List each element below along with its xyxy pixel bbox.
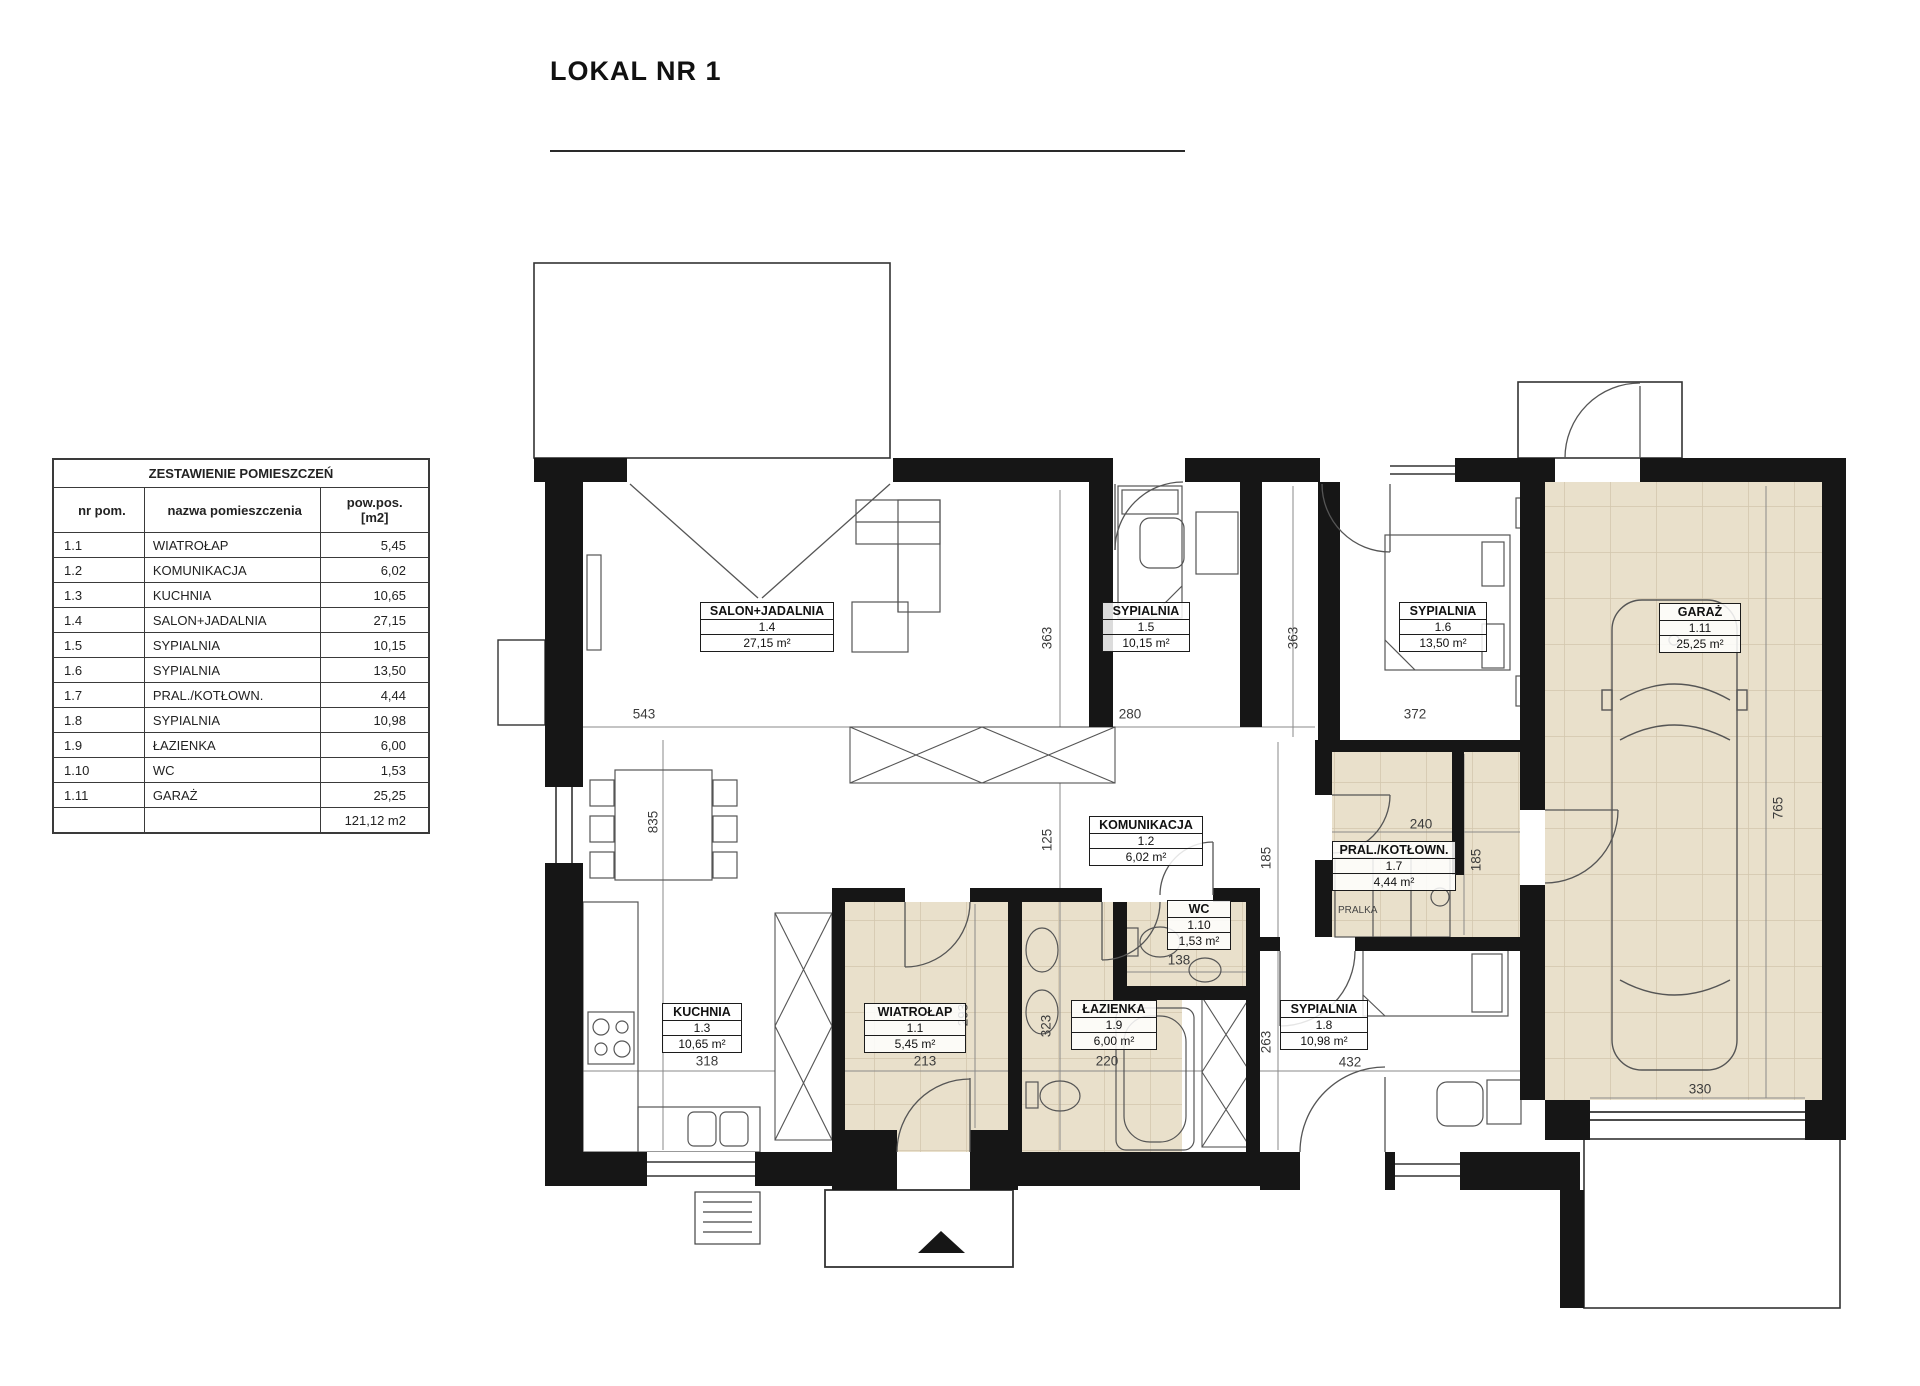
room-area: 4,44 m² [1333, 874, 1455, 890]
room-label-wc: WC 1.10 1,53 m² [1167, 900, 1231, 950]
table-row: 1.3KUCHNIA10,65 [53, 583, 429, 608]
cell-nr: 1.11 [53, 783, 144, 808]
room-number: 1.7 [1333, 859, 1455, 874]
dimension-label-185a: 185 [1259, 847, 1274, 870]
room-number: 1.8 [1281, 1018, 1367, 1033]
room-label-pral-kotlownia: PRAL./KOTŁOWN. 1.7 4,44 m² [1332, 841, 1456, 891]
room-area: 10,15 m² [1103, 635, 1189, 651]
schedule-header-area: pow.pos. [m2] [321, 488, 429, 533]
washer-label: PRALKA [1338, 905, 1377, 916]
dimension-label-363a: 363 [1040, 627, 1055, 650]
table-row: 1.1WIATROŁAP5,45 [53, 533, 429, 558]
room-number: 1.2 [1090, 834, 1202, 849]
room-label-komunikacja: KOMUNIKACJA 1.2 6,02 m² [1089, 816, 1203, 866]
cell-name: SYPIALNIA [144, 633, 321, 658]
dimension-label-318: 318 [696, 1054, 719, 1069]
schedule-title: ZESTAWIENIE POMIESZCZEŃ [53, 459, 429, 488]
room-number: 1.4 [701, 620, 833, 635]
dimension-label-543: 543 [633, 707, 656, 722]
cell-area: 6,00 [321, 733, 429, 758]
room-number: 1.5 [1103, 620, 1189, 635]
room-name: SYPIALNIA [1281, 1001, 1367, 1018]
cell-name: KUCHNIA [144, 583, 321, 608]
room-area: 1,53 m² [1168, 933, 1230, 949]
table-row: 1.10WC1,53 [53, 758, 429, 783]
cell-name: WIATROŁAP [144, 533, 321, 558]
room-label-kuchnia: KUCHNIA 1.3 10,65 m² [662, 1003, 742, 1053]
dimension-label-220: 220 [1096, 1054, 1119, 1069]
floor-plan-sheet: LOKAL NR 1 ZESTAWIENIE POMIESZCZEŃ nr po… [0, 0, 1920, 1386]
room-number: 1.10 [1168, 918, 1230, 933]
dimension-label-280: 280 [1119, 707, 1142, 722]
cell-nr: 1.4 [53, 608, 144, 633]
room-number: 1.3 [663, 1021, 741, 1036]
dimension-label-138: 138 [1168, 953, 1191, 968]
cell-area: 27,15 [321, 608, 429, 633]
cell-area: 25,25 [321, 783, 429, 808]
table-total-row: 121,12 m2 [53, 808, 429, 834]
cell-nr: 1.1 [53, 533, 144, 558]
room-area: 6,02 m² [1090, 849, 1202, 865]
cell-nr: 1.3 [53, 583, 144, 608]
page-title: LOKAL NR 1 [550, 56, 722, 87]
room-label-wiatrolap: WIATROŁAP 1.1 5,45 m² [864, 1003, 966, 1053]
room-label-sypialnia-18: SYPIALNIA 1.8 10,98 m² [1280, 1000, 1368, 1050]
room-label-sypialnia-16: SYPIALNIA 1.6 13,50 m² [1399, 602, 1487, 652]
room-label-salon-jadalnia: SALON+JADALNIA 1.4 27,15 m² [700, 602, 834, 652]
terrace-outline [534, 263, 890, 458]
cell-area: 13,50 [321, 658, 429, 683]
cell-nr: 1.10 [53, 758, 144, 783]
cell-area: 10,98 [321, 708, 429, 733]
room-area: 5,45 m² [865, 1036, 965, 1052]
cell-area: 6,02 [321, 558, 429, 583]
schedule-header-area-line2: [m2] [325, 510, 424, 525]
cell-name: WC [144, 758, 321, 783]
table-row: 1.7PRAL./KOTŁOWN.4,44 [53, 683, 429, 708]
dimension-label-835: 835 [646, 811, 661, 834]
table-row: 1.5SYPIALNIA10,15 [53, 633, 429, 658]
cell-name: GARAŻ [144, 783, 321, 808]
room-name: PRAL./KOTŁOWN. [1333, 842, 1455, 859]
entry-porch [825, 1190, 1013, 1267]
dimension-label-240: 240 [1410, 817, 1433, 832]
cell-area: 5,45 [321, 533, 429, 558]
cell-total-area: 121,12 m2 [321, 808, 429, 834]
cell-empty [144, 808, 321, 834]
table-row: 1.4SALON+JADALNIA27,15 [53, 608, 429, 633]
room-number: 1.1 [865, 1021, 965, 1036]
cell-name: SALON+JADALNIA [144, 608, 321, 633]
dimension-label-363b: 363 [1286, 627, 1301, 650]
room-label-sypialnia-15: SYPIALNIA 1.5 10,15 m² [1102, 602, 1190, 652]
dimension-label-323: 323 [1039, 1015, 1054, 1038]
dimension-label-765: 765 [1771, 797, 1786, 820]
room-name: WC [1168, 901, 1230, 918]
cell-nr: 1.5 [53, 633, 144, 658]
table-row: 1.11GARAŻ25,25 [53, 783, 429, 808]
garage-side-porch [1518, 382, 1682, 458]
room-number: 1.11 [1660, 621, 1740, 636]
dimension-label-372: 372 [1404, 707, 1427, 722]
cell-area: 4,44 [321, 683, 429, 708]
cell-area: 1,53 [321, 758, 429, 783]
table-row: 1.9ŁAZIENKA6,00 [53, 733, 429, 758]
room-number: 1.6 [1400, 620, 1486, 635]
room-name: KOMUNIKACJA [1090, 817, 1202, 834]
room-area: 25,25 m² [1660, 636, 1740, 652]
dimension-label-213: 213 [914, 1054, 937, 1069]
room-area: 6,00 m² [1072, 1033, 1156, 1049]
table-row: 1.8SYPIALNIA10,98 [53, 708, 429, 733]
outdoor-unit [695, 1192, 760, 1244]
table-row: 1.6SYPIALNIA13,50 [53, 658, 429, 683]
dimension-label-125: 125 [1040, 829, 1055, 852]
schedule-header-nr: nr pom. [53, 488, 144, 533]
chimney-outline [498, 640, 545, 725]
cell-area: 10,15 [321, 633, 429, 658]
cell-nr: 1.2 [53, 558, 144, 583]
room-area: 10,65 m² [663, 1036, 741, 1052]
room-schedule-table: ZESTAWIENIE POMIESZCZEŃ nr pom. nazwa po… [52, 458, 430, 834]
cell-nr: 1.7 [53, 683, 144, 708]
dimension-label-263: 263 [1259, 1031, 1274, 1054]
dimension-label-432: 432 [1339, 1055, 1362, 1070]
driveway-outline [1584, 1139, 1840, 1308]
room-area: 10,98 m² [1281, 1033, 1367, 1049]
title-rule [550, 150, 1185, 152]
room-area: 27,15 m² [701, 635, 833, 651]
cell-name: ŁAZIENKA [144, 733, 321, 758]
room-number: 1.9 [1072, 1018, 1156, 1033]
schedule-header-name: nazwa pomieszczenia [144, 488, 321, 533]
room-name: WIATROŁAP [865, 1004, 965, 1021]
table-row: 1.2KOMUNIKACJA6,02 [53, 558, 429, 583]
entrance-arrow [918, 1231, 965, 1253]
room-area: 13,50 m² [1400, 635, 1486, 651]
room-name: ŁAZIENKA [1072, 1001, 1156, 1018]
room-name: SYPIALNIA [1103, 603, 1189, 620]
room-name: SALON+JADALNIA [701, 603, 833, 620]
cell-name: SYPIALNIA [144, 708, 321, 733]
cell-area: 10,65 [321, 583, 429, 608]
room-name: KUCHNIA [663, 1004, 741, 1021]
cell-name: PRAL./KOTŁOWN. [144, 683, 321, 708]
room-name: GARAŻ [1660, 604, 1740, 621]
cell-nr: 1.9 [53, 733, 144, 758]
cell-name: SYPIALNIA [144, 658, 321, 683]
cell-nr: 1.8 [53, 708, 144, 733]
cell-empty [53, 808, 144, 834]
room-name: SYPIALNIA [1400, 603, 1486, 620]
room-label-garaz: GARAŻ 1.11 25,25 m² [1659, 603, 1741, 653]
dimension-label-330: 330 [1689, 1082, 1712, 1097]
room-label-lazienka: ŁAZIENKA 1.9 6,00 m² [1071, 1000, 1157, 1050]
cell-nr: 1.6 [53, 658, 144, 683]
schedule-header-area-line1: pow.pos. [325, 495, 424, 510]
cell-name: KOMUNIKACJA [144, 558, 321, 583]
dimension-label-185b: 185 [1469, 849, 1484, 872]
